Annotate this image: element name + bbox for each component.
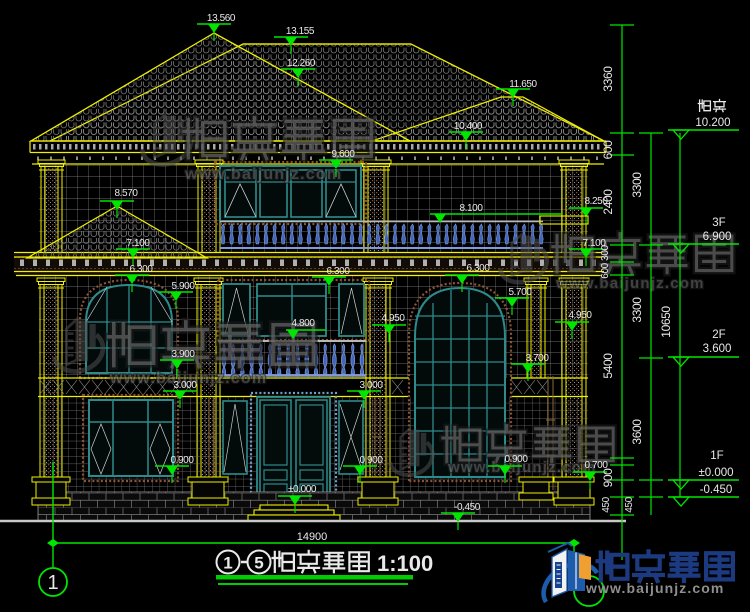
svg-text:5.900: 5.900 [171, 281, 195, 292]
svg-text:6.300: 6.300 [466, 263, 490, 274]
svg-text:6.900: 6.900 [703, 231, 732, 243]
svg-text:14900: 14900 [297, 531, 328, 543]
svg-text:7.100: 7.100 [126, 238, 150, 249]
svg-text:±0.000: ±0.000 [698, 467, 733, 479]
svg-text:600: 600 [601, 140, 615, 160]
svg-text:1:100: 1:100 [377, 551, 433, 576]
svg-text:3360: 3360 [601, 66, 615, 92]
svg-text:6.300: 6.300 [129, 264, 153, 275]
svg-text:4.800: 4.800 [291, 318, 315, 329]
svg-text:3.600: 3.600 [703, 343, 732, 355]
svg-text:-0.450: -0.450 [454, 502, 481, 513]
svg-text:5.700: 5.700 [508, 287, 532, 298]
svg-text:8.570: 8.570 [114, 188, 138, 199]
svg-text:www.baijunjz.com: www.baijunjz.com [184, 166, 342, 183]
svg-text:3.900: 3.900 [171, 349, 195, 360]
svg-text:0.900: 0.900 [359, 455, 383, 466]
svg-text:13.155: 13.155 [286, 26, 315, 37]
svg-text:4.950: 4.950 [568, 310, 592, 321]
svg-text:1: 1 [47, 572, 58, 594]
svg-text:2400: 2400 [601, 189, 615, 215]
svg-text:4.950: 4.950 [381, 313, 405, 324]
svg-text:3600: 3600 [630, 419, 644, 445]
svg-text:10.200: 10.200 [695, 117, 730, 129]
svg-text:0.900: 0.900 [170, 455, 194, 466]
svg-text:900: 900 [601, 468, 615, 488]
svg-text:-0.450: -0.450 [700, 484, 733, 496]
svg-text:3.000: 3.000 [359, 380, 383, 391]
svg-text:1F: 1F [710, 450, 723, 462]
svg-text:±0.000: ±0.000 [288, 484, 317, 495]
svg-text:450: 450 [601, 496, 612, 512]
svg-text:600 300: 600 300 [600, 244, 611, 278]
svg-text:6.300: 6.300 [326, 266, 350, 277]
svg-text:3300: 3300 [630, 297, 644, 323]
svg-text:1: 1 [223, 554, 232, 573]
svg-text:10.400: 10.400 [454, 121, 483, 132]
svg-text:www.baijunjz.com: www.baijunjz.com [585, 580, 724, 596]
svg-text:3.700: 3.700 [525, 353, 549, 364]
svg-text:12.260: 12.260 [287, 58, 316, 69]
svg-text:3F: 3F [712, 217, 725, 229]
svg-text:8.100: 8.100 [459, 203, 483, 214]
svg-text:3300: 3300 [630, 172, 644, 198]
svg-text:2F: 2F [712, 329, 725, 341]
svg-text:450: 450 [624, 496, 635, 512]
svg-text:3.000: 3.000 [173, 380, 197, 391]
svg-text:13.560: 13.560 [207, 13, 236, 24]
svg-text:5: 5 [254, 554, 263, 573]
svg-text:10650: 10650 [659, 306, 673, 338]
svg-text:5400: 5400 [601, 353, 615, 379]
svg-text:9.600: 9.600 [331, 149, 355, 160]
svg-text:www.baijunjz.com: www.baijunjz.com [555, 275, 705, 292]
svg-text:0.900: 0.900 [504, 454, 528, 465]
